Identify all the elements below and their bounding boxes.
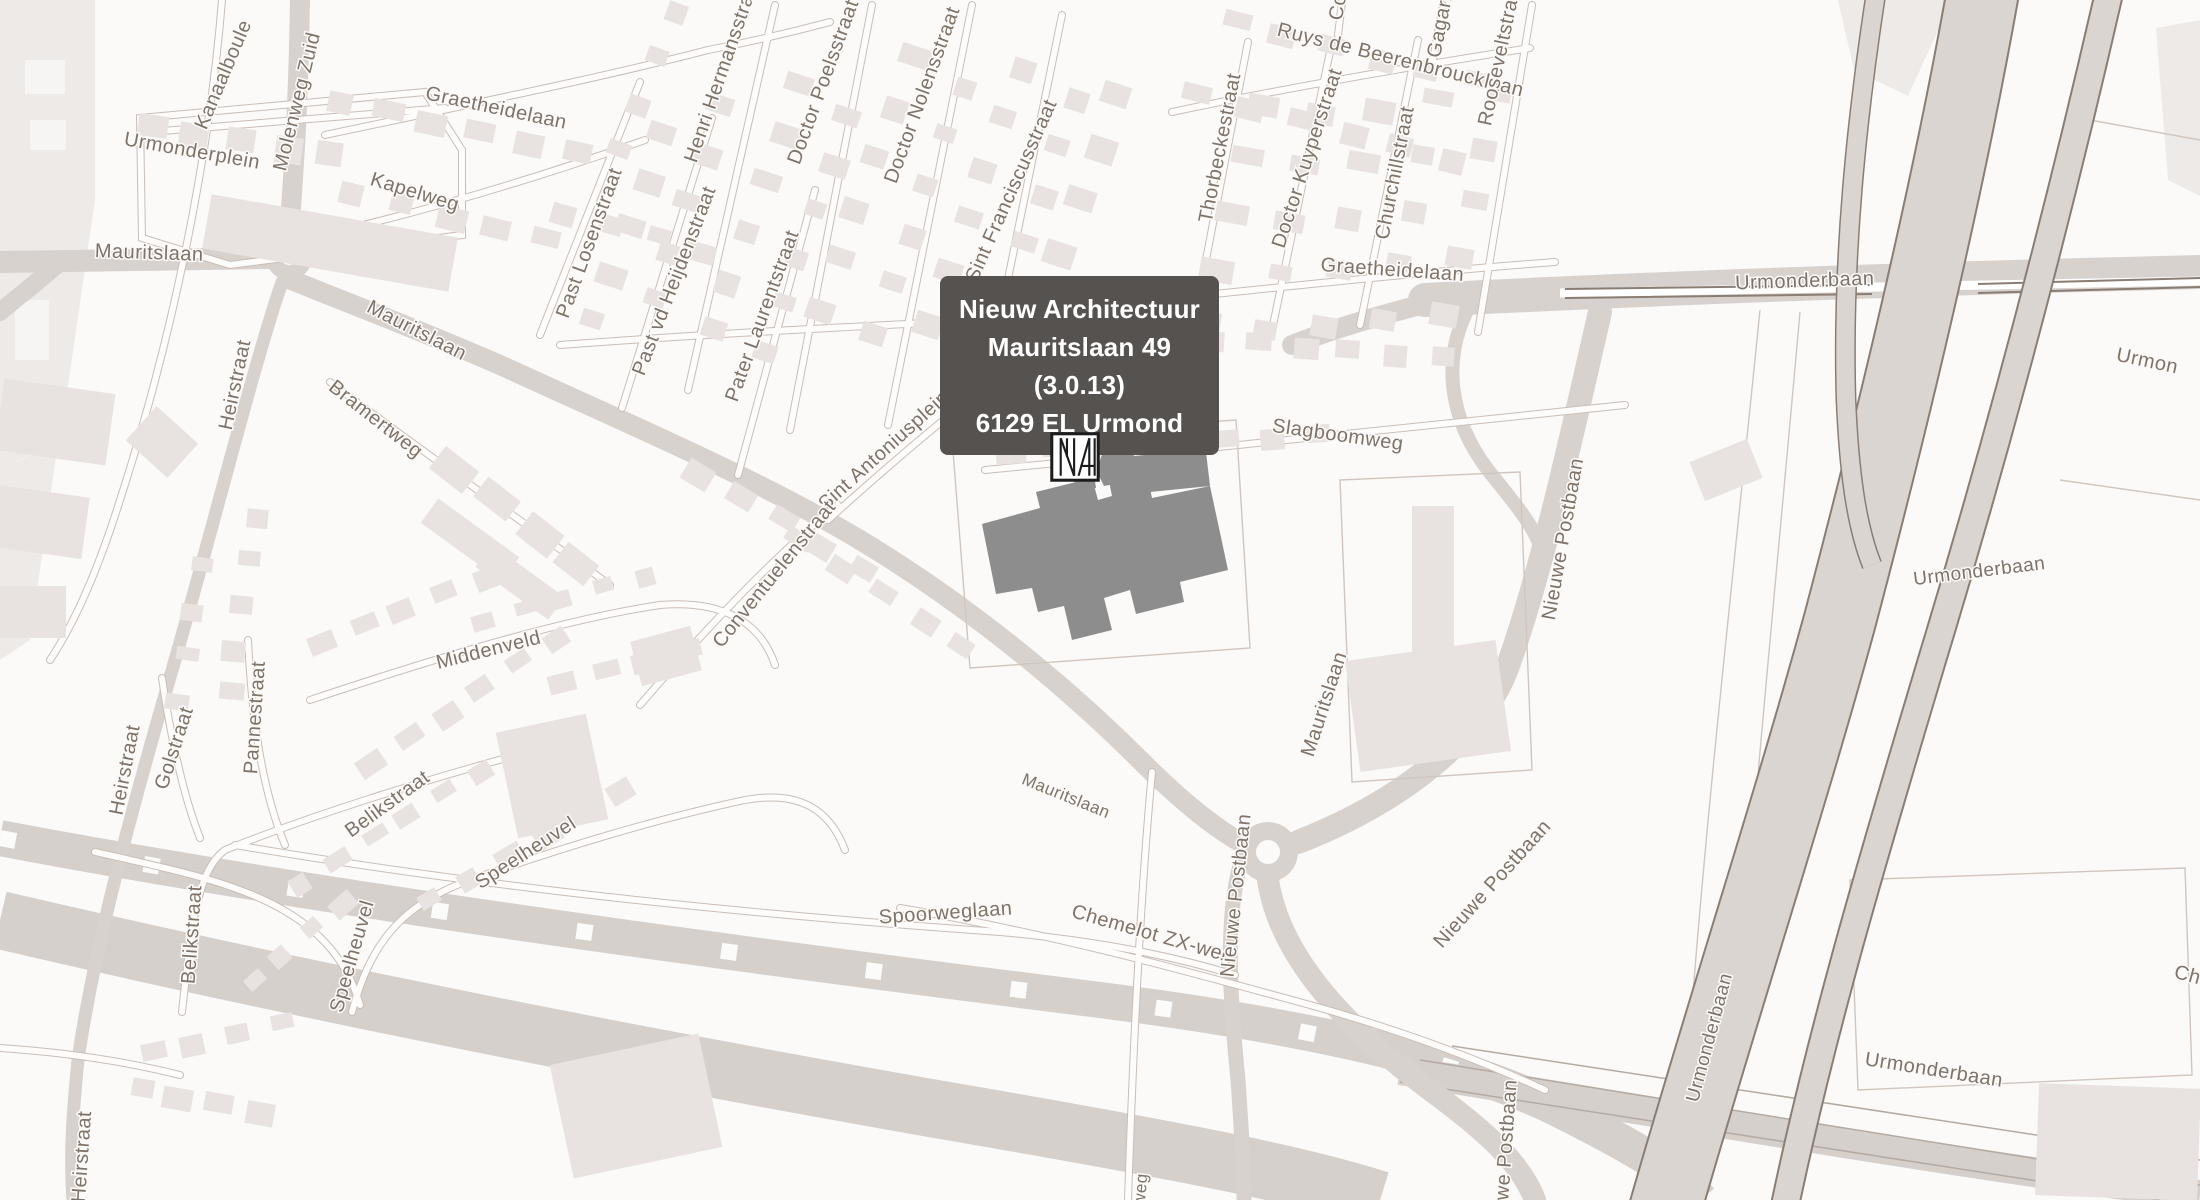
street-label: Past vd Heijdenstraat [628,183,720,378]
building [0,586,66,638]
map-canvas[interactable]: KanaalbouleUrmonderpleinMauritslaanMolen… [0,0,2200,1200]
building [354,748,388,780]
street-label: Pannestraat [240,660,270,775]
building [1410,144,1435,166]
building [1063,87,1090,114]
building [633,168,666,198]
building [825,554,858,585]
building [220,640,246,663]
building [868,578,899,606]
building [1461,190,1490,211]
building [1422,88,1454,108]
building [1230,145,1264,167]
building [244,1100,276,1128]
building [933,123,958,144]
building [1428,301,1460,329]
building [825,245,856,270]
street-label: Kanaalboule [191,17,257,133]
building [1063,184,1098,213]
building [1345,640,1511,772]
street-label: Mauritslaan [1297,649,1352,759]
building [394,722,426,751]
building [131,1077,156,1099]
building [547,671,578,696]
building [838,196,870,225]
building [385,597,416,625]
building [0,379,115,466]
building [1470,137,1498,162]
building [1044,134,1071,157]
building [967,157,997,185]
building [634,567,656,589]
building [1362,98,1397,126]
building [179,603,203,623]
building [322,846,353,873]
building [1335,339,1360,359]
building [733,219,760,245]
street-label: Ch [2172,961,2200,989]
street-label: weg [1130,1172,1152,1200]
tooltip-address: Mauritslaan 49 (3.0.13) [952,328,1207,404]
street-label: Middenveld [434,627,543,674]
building [1401,200,1427,225]
highlighted-buildings [982,444,1228,640]
street-label: Bramertweg [324,376,426,463]
building [470,611,496,632]
street-label: Gagarin [1423,0,1459,60]
building [594,261,629,290]
street-label: Co [1325,0,1351,22]
building [646,120,678,146]
street-label: Urmonderbaan [1912,553,2046,590]
building [1041,238,1078,270]
building [1369,308,1397,332]
building [630,626,702,686]
building [326,90,354,116]
building [161,1086,194,1113]
building [1438,148,1467,176]
building [1334,206,1361,232]
building [1432,346,1455,366]
building [946,632,975,659]
building [238,550,261,567]
building [463,119,496,144]
street-label: Mauritslaan [1019,770,1113,823]
building [1009,56,1038,84]
map-viewport[interactable]: KanaalbouleUrmonderpleinMauritslaanMolen… [0,0,2200,1200]
street-label: Mauritslaan [94,240,204,266]
building [579,308,605,331]
street-label: Mauritslaan [363,296,470,365]
building [1309,314,1338,339]
building [219,681,245,700]
nieuw-architectuur-logo-icon [1050,432,1100,482]
building [647,225,672,245]
location-marker[interactable] [1050,432,1100,482]
building [592,658,621,680]
building [954,205,984,229]
building [224,1023,250,1045]
street-label: Sint Antoniusplein [814,386,954,515]
building [371,98,406,122]
building [479,215,512,241]
building [1181,81,1213,105]
building [604,776,636,807]
street-label: Urmon [2114,344,2180,379]
building [1222,9,1253,31]
building [512,131,545,160]
building [530,226,561,249]
building [203,1091,235,1115]
street-label: Past Losenstraat [552,165,627,321]
building [306,629,338,657]
building [0,485,90,559]
building [464,674,495,703]
building [178,1033,206,1059]
building [1689,439,1762,501]
building [246,508,269,529]
tooltip-title: Nieuw Architectuur [952,290,1207,328]
building [831,104,862,129]
building [315,140,344,167]
building [1084,134,1119,167]
building [1346,150,1381,174]
building [337,181,365,208]
building [562,139,594,164]
building [140,1040,168,1062]
building [270,1012,295,1031]
building [1245,332,1272,351]
building [663,0,689,26]
building [549,202,578,229]
building [350,611,380,636]
street-label: Urmonderbaan [1863,1048,2004,1092]
location-tooltip: Nieuw Architectuur Mauritslaan 49 (3.0.1… [940,276,1219,455]
building [749,168,783,193]
building [1099,80,1132,110]
building [431,700,464,732]
building [126,406,198,478]
building [910,607,942,637]
building [1339,122,1370,150]
building [191,556,214,573]
building [429,579,458,604]
building [879,270,907,294]
street-label: Slagboomweg [1271,415,1405,455]
building [496,714,608,839]
building [1030,184,1059,210]
building [2035,1083,2200,1200]
building [1293,337,1319,360]
site-building-main [982,468,1228,640]
building [229,595,253,615]
street-label: Nieuwe Postbaan [1429,816,1555,953]
building [1383,344,1407,368]
street-label: Henri Hermansstraat [680,0,764,165]
building [989,105,1017,130]
